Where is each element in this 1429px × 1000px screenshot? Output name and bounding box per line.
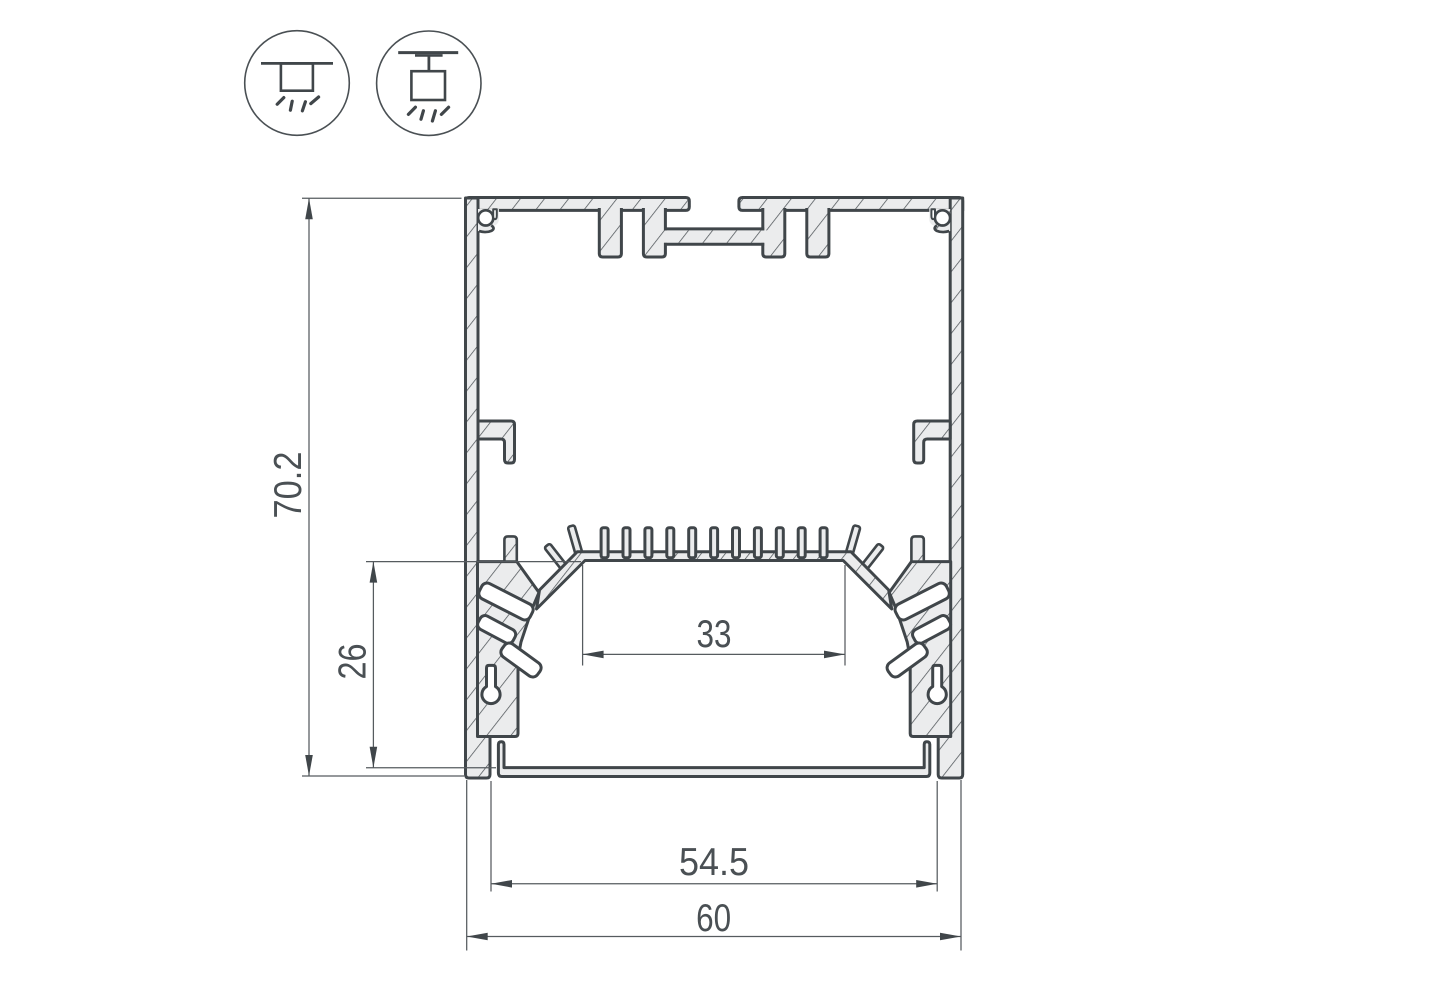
svg-text:70.2: 70.2 xyxy=(267,452,310,519)
svg-text:26: 26 xyxy=(332,644,375,680)
svg-text:60: 60 xyxy=(696,897,731,940)
svg-text:54.5: 54.5 xyxy=(679,841,749,884)
svg-text:33: 33 xyxy=(697,613,732,656)
